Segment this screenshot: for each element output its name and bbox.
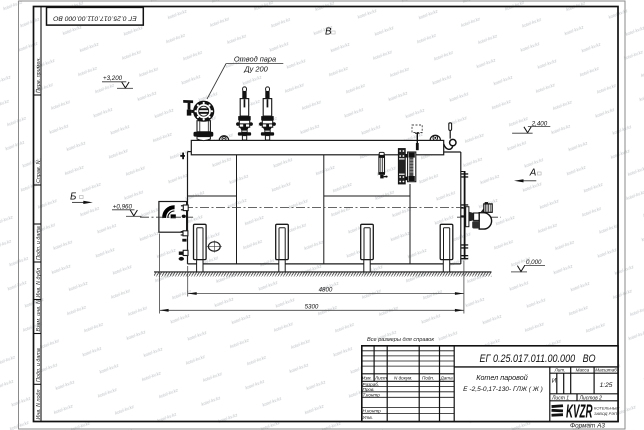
svg-text:И: И [552, 378, 557, 385]
svg-text:Ду 200: Ду 200 [243, 65, 268, 74]
svg-text:Лист: Лист [374, 376, 387, 381]
svg-text:Отвод пара: Отвод пара [234, 55, 276, 64]
svg-text:А: А [529, 167, 537, 178]
svg-text:Масштаб: Масштаб [595, 368, 617, 373]
svg-text:В: В [325, 26, 332, 37]
svg-text:Масса: Масса [576, 368, 590, 373]
svg-text:Взам. инв. N: Взам. инв. N [36, 300, 42, 332]
svg-text:Подп. и дата: Подп. и дата [36, 226, 42, 260]
svg-text:Пров.: Пров. [363, 387, 375, 392]
svg-text:Подп.: Подп. [422, 376, 434, 381]
svg-text:5300: 5300 [305, 303, 319, 310]
svg-text:ЕГ 0.25.017.011.00.000 ВО: ЕГ 0.25.017.011.00.000 ВО [480, 353, 596, 365]
svg-text:Перв. примен.: Перв. примен. [36, 57, 42, 93]
svg-text:0,000: 0,000 [526, 259, 542, 266]
svg-text:Все размеры для справок: Все размеры для справок [367, 337, 434, 343]
svg-text:Лит.: Лит. [554, 368, 566, 373]
svg-text:Б: Б [70, 191, 77, 202]
svg-text:Изм.: Изм. [362, 376, 372, 381]
svg-text:Котел паровой: Котел паровой [476, 373, 528, 382]
svg-text:Н.контр: Н.контр [363, 409, 382, 414]
svg-text:ЕГ 0.25.017.011.00.000 ВО: ЕГ 0.25.017.011.00.000 ВО [53, 14, 137, 21]
svg-text:Инв. N дубл: Инв. N дубл [36, 268, 42, 298]
svg-text:N докум.: N докум. [394, 376, 413, 381]
svg-text:KVZR: KVZR [566, 401, 593, 422]
svg-text:Дата: Дата [440, 376, 454, 381]
svg-text:+3,200: +3,200 [103, 75, 123, 82]
svg-text:Формат А3: Формат А3 [570, 423, 605, 430]
svg-text:4800: 4800 [319, 287, 333, 294]
svg-text:Подп. и дата: Подп. и дата [36, 348, 42, 382]
svg-text:1:25: 1:25 [600, 382, 613, 389]
svg-text:Т.контр: Т.контр [363, 393, 381, 398]
svg-text:Инв. N подл: Инв. N подл [36, 389, 42, 419]
svg-text:+0,960: +0,960 [113, 203, 133, 210]
svg-text:Е -2,5-0,17-130- ГЛЖ ( Ж ): Е -2,5-0,17-130- ГЛЖ ( Ж ) [463, 386, 543, 393]
svg-text:КОТЕЛЬНЫЙ: КОТЕЛЬНЫЙ [594, 406, 619, 411]
svg-text:Справ. N: Справ. N [36, 160, 42, 183]
svg-text:ЗАВОД РЭП: ЗАВОД РЭП [594, 411, 617, 416]
svg-text:Утв.: Утв. [363, 415, 373, 420]
